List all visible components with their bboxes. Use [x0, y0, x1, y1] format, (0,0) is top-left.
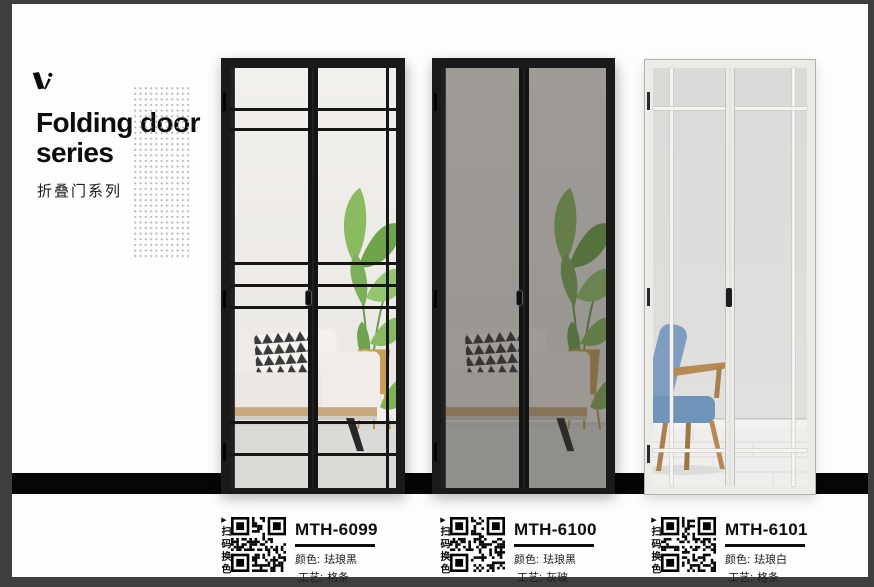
- color-spec: 颜色:珐琅黑: [514, 552, 597, 570]
- door-hinge: [434, 443, 437, 461]
- door-hinge: [647, 445, 650, 463]
- door-hinge: [434, 93, 437, 111]
- qr-caption: 扫码换色: [219, 526, 229, 576]
- door-handle: [516, 290, 523, 306]
- arrow-icon: ▶: [651, 517, 656, 525]
- craft-label: 工艺:: [517, 572, 542, 584]
- page-subtitle-zh: 折叠门系列: [37, 180, 122, 201]
- door-handle: [726, 288, 732, 307]
- qr-caption-column: ▶ 扫码换色: [218, 517, 230, 576]
- craft-spec: 工艺:灰玻: [514, 570, 597, 587]
- arrow-icon: ▶: [440, 517, 445, 525]
- product-model: MTH-6099: [295, 520, 378, 540]
- page-background: { "page": { "background_color": "#3f3f3f…: [0, 0, 874, 583]
- color-value: 珐琅黑: [324, 554, 357, 566]
- door-hinge: [434, 290, 437, 308]
- color-spec: 颜色:珐琅黑: [295, 552, 378, 570]
- door-preview-mth-6099: [221, 58, 405, 494]
- craft-label: 工艺:: [728, 572, 753, 584]
- product-model: MTH-6100: [514, 520, 597, 540]
- door-hinge: [223, 290, 226, 308]
- door-center-divider: [519, 68, 529, 488]
- door-handle: [305, 290, 312, 306]
- door-hinge: [223, 93, 226, 111]
- qr-caption-column: ▶ 扫码换色: [437, 517, 449, 576]
- craft-value: 格条: [757, 572, 779, 584]
- craft-value: 格条: [327, 572, 349, 584]
- product-model: MTH-6101: [725, 520, 808, 540]
- model-underline: [295, 544, 375, 547]
- product-label-mth-6099: ▶ 扫码换色 MTH-6099 颜色:珐琅黑 工艺:格条: [218, 517, 378, 587]
- color-value: 珐琅白: [754, 554, 787, 566]
- brand-logo-icon: [32, 72, 62, 98]
- craft-spec: 工艺:格条: [725, 570, 808, 587]
- craft-spec: 工艺:格条: [295, 570, 378, 587]
- door-stile: [441, 68, 446, 488]
- arrow-icon: ▶: [221, 517, 226, 525]
- craft-value: 灰玻: [546, 572, 568, 584]
- model-underline: [725, 544, 805, 547]
- door-stile: [230, 68, 235, 488]
- model-underline: [514, 544, 594, 547]
- qr-caption: 扫码换色: [438, 526, 448, 576]
- qr-code-icon: [661, 517, 716, 572]
- color-label: 颜色:: [514, 554, 539, 566]
- door-center-divider: [308, 68, 318, 488]
- door-preview-mth-6100: [432, 58, 615, 494]
- color-label: 颜色:: [725, 554, 750, 566]
- door-preview-mth-6101: [645, 60, 815, 494]
- color-label: 颜色:: [295, 554, 320, 566]
- dot-pattern: [134, 87, 192, 258]
- door-hinge: [223, 443, 226, 461]
- color-spec: 颜色:珐琅白: [725, 552, 808, 570]
- craft-label: 工艺:: [298, 572, 323, 584]
- qr-caption-column: ▶ 扫码换色: [648, 517, 660, 576]
- product-label-mth-6100: ▶ 扫码换色 MTH-6100 颜色:珐琅黑 工艺:灰玻: [437, 517, 597, 587]
- door-hinge: [647, 92, 650, 110]
- product-label-mth-6101: ▶ 扫码换色 MTH-6101 颜色:珐琅白 工艺:格条: [648, 517, 808, 587]
- door-center-divider: [725, 68, 735, 486]
- color-value: 珐琅黑: [543, 554, 576, 566]
- door-hinge: [647, 288, 650, 306]
- qr-code-icon: [450, 517, 505, 572]
- qr-code-icon: [231, 517, 286, 572]
- qr-caption: 扫码换色: [649, 526, 659, 576]
- catalog-card: Folding door series 折叠门系列: [12, 4, 868, 577]
